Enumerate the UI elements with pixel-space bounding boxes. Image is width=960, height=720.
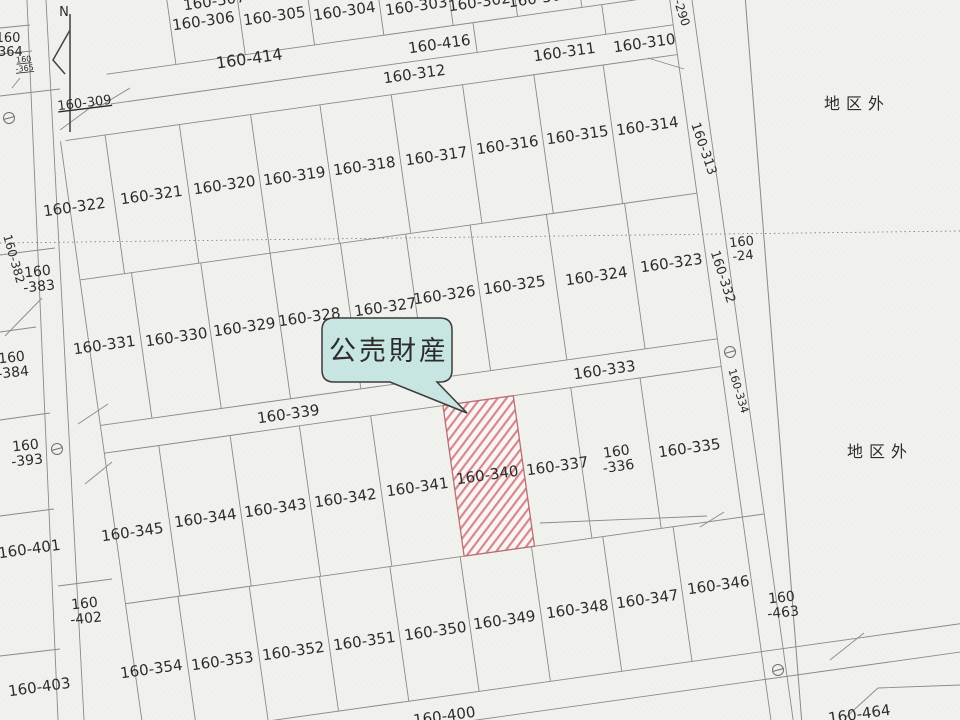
sub-parcel-line	[540, 516, 707, 523]
label-parcel-160-326: 160-326	[412, 282, 477, 309]
label-parcel-160-311: 160-311	[532, 39, 597, 66]
label-parcel-160-416: 160-416	[407, 31, 472, 58]
label-parcel-160-331: 160-331	[72, 332, 137, 359]
label-parcel-160-342: 160-342	[313, 485, 378, 512]
label-parcel-160-320: 160-320	[192, 172, 257, 199]
label-road-160-400: 160-400	[412, 703, 477, 720]
label-parcel-160-24: 160-24	[729, 234, 757, 265]
label-parcel-160-402: 160-402	[68, 594, 103, 628]
label-parcel-160-336: 160-336	[600, 442, 636, 477]
label-parcel-160-350: 160-350	[403, 618, 468, 645]
label-parcel-160-354: 160-354	[119, 656, 184, 683]
label-parcel-160-464: 160-464	[827, 701, 892, 720]
label-parcel-160-351: 160-351	[332, 628, 397, 655]
label-parcel-160-306: 160-306	[171, 8, 236, 35]
label-parcel-160-345: 160-345	[100, 519, 165, 546]
label-parcel-160-301: 160-301	[507, 0, 572, 11]
north-arrow	[53, 14, 70, 132]
label-parcel-160-304: 160-304	[312, 0, 377, 24]
label-parcel-160-317: 160-317	[404, 143, 469, 170]
label-parcel-160-327: 160-327	[353, 294, 418, 321]
label-parcel-160-318: 160-318	[332, 153, 397, 180]
benchmark-icon	[725, 347, 736, 358]
label-parcel-160-321: 160-321	[119, 182, 184, 209]
label-parcel-160-335: 160-335	[657, 435, 722, 462]
label-parcel-160-348: 160-348	[545, 596, 610, 623]
label-parcel-160-324: 160-324	[564, 263, 629, 290]
label-parcel-160-315: 160-315	[545, 122, 610, 149]
label-parcel-160-302: 160-302	[447, 0, 512, 15]
map-canvas: N160-307160-306160-305160-304160-303160-…	[0, 0, 960, 720]
label-parcel-160-347: 160-347	[615, 586, 680, 613]
label-parcel-160-305: 160-305	[242, 3, 307, 30]
label-parcel-160-323: 160-323	[639, 250, 704, 277]
label-parcel-160-343: 160-343	[243, 495, 308, 522]
label-road-160-339: 160-339	[256, 401, 321, 428]
benchmark-icon	[52, 444, 63, 455]
label-parcel-160-310: 160-310	[612, 30, 677, 57]
label-parcel-160-341: 160-341	[385, 474, 450, 501]
benchmark-icon	[4, 113, 15, 124]
north-arrow-flag	[53, 30, 70, 74]
label-parcel-160-322: 160-322	[42, 194, 107, 221]
label-parcel-160-319: 160-319	[262, 163, 327, 190]
label-parcel-160-290: -290	[671, 0, 693, 28]
parcel-labels: N160-307160-306160-305160-304160-303160-…	[0, 0, 913, 720]
label-parcel-160-325: 160-325	[482, 272, 547, 299]
label-road-160-309: 160-309	[57, 93, 113, 115]
label-road-160-382: 160-382	[0, 233, 27, 285]
label-parcel-160-414: 160-414	[215, 44, 284, 72]
parcel-map: N160-307160-306160-305160-304160-303160-…	[0, 0, 960, 720]
label-parcel-160-403: 160-403	[7, 674, 72, 701]
label-parcel-160-346: 160-346	[686, 572, 751, 599]
label-parcel-160-365: 160-365	[14, 54, 34, 74]
label-parcel-160-337: 160-337	[525, 453, 590, 480]
label-parcel-160-303: 160-303	[384, 0, 449, 19]
label-parcel-160-329: 160-329	[212, 314, 277, 341]
section-dotted-line	[0, 231, 960, 243]
label-parcel-160-349: 160-349	[472, 607, 537, 634]
label-parcel-160-393: 160-393	[9, 436, 44, 470]
label-region-chikugai-top: 地区外	[824, 94, 890, 113]
callout-text: 公売財産	[329, 336, 449, 367]
label-parcel-160-384: 160-384	[0, 348, 30, 382]
label-parcel-160-330: 160-330	[144, 324, 209, 351]
label-road-160-313: 160-313	[687, 121, 719, 177]
auction-callout: 公売財産	[322, 318, 467, 413]
benchmark-icon	[773, 665, 784, 676]
label-road-160-334: 160-334	[725, 367, 751, 415]
label-north-letter: N	[59, 5, 69, 20]
label-parcel-160-353: 160-353	[190, 648, 255, 675]
label-parcel-160-314: 160-314	[615, 113, 680, 140]
label-parcel-160-316: 160-316	[475, 132, 540, 159]
label-parcel-160-463: 160-463	[765, 588, 800, 622]
label-parcel-160-344: 160-344	[173, 505, 238, 532]
label-parcel-160-401: 160-401	[0, 536, 62, 563]
label-region-chikugai-bottom: 地区外	[847, 442, 913, 461]
label-parcel-160-352: 160-352	[261, 638, 326, 665]
